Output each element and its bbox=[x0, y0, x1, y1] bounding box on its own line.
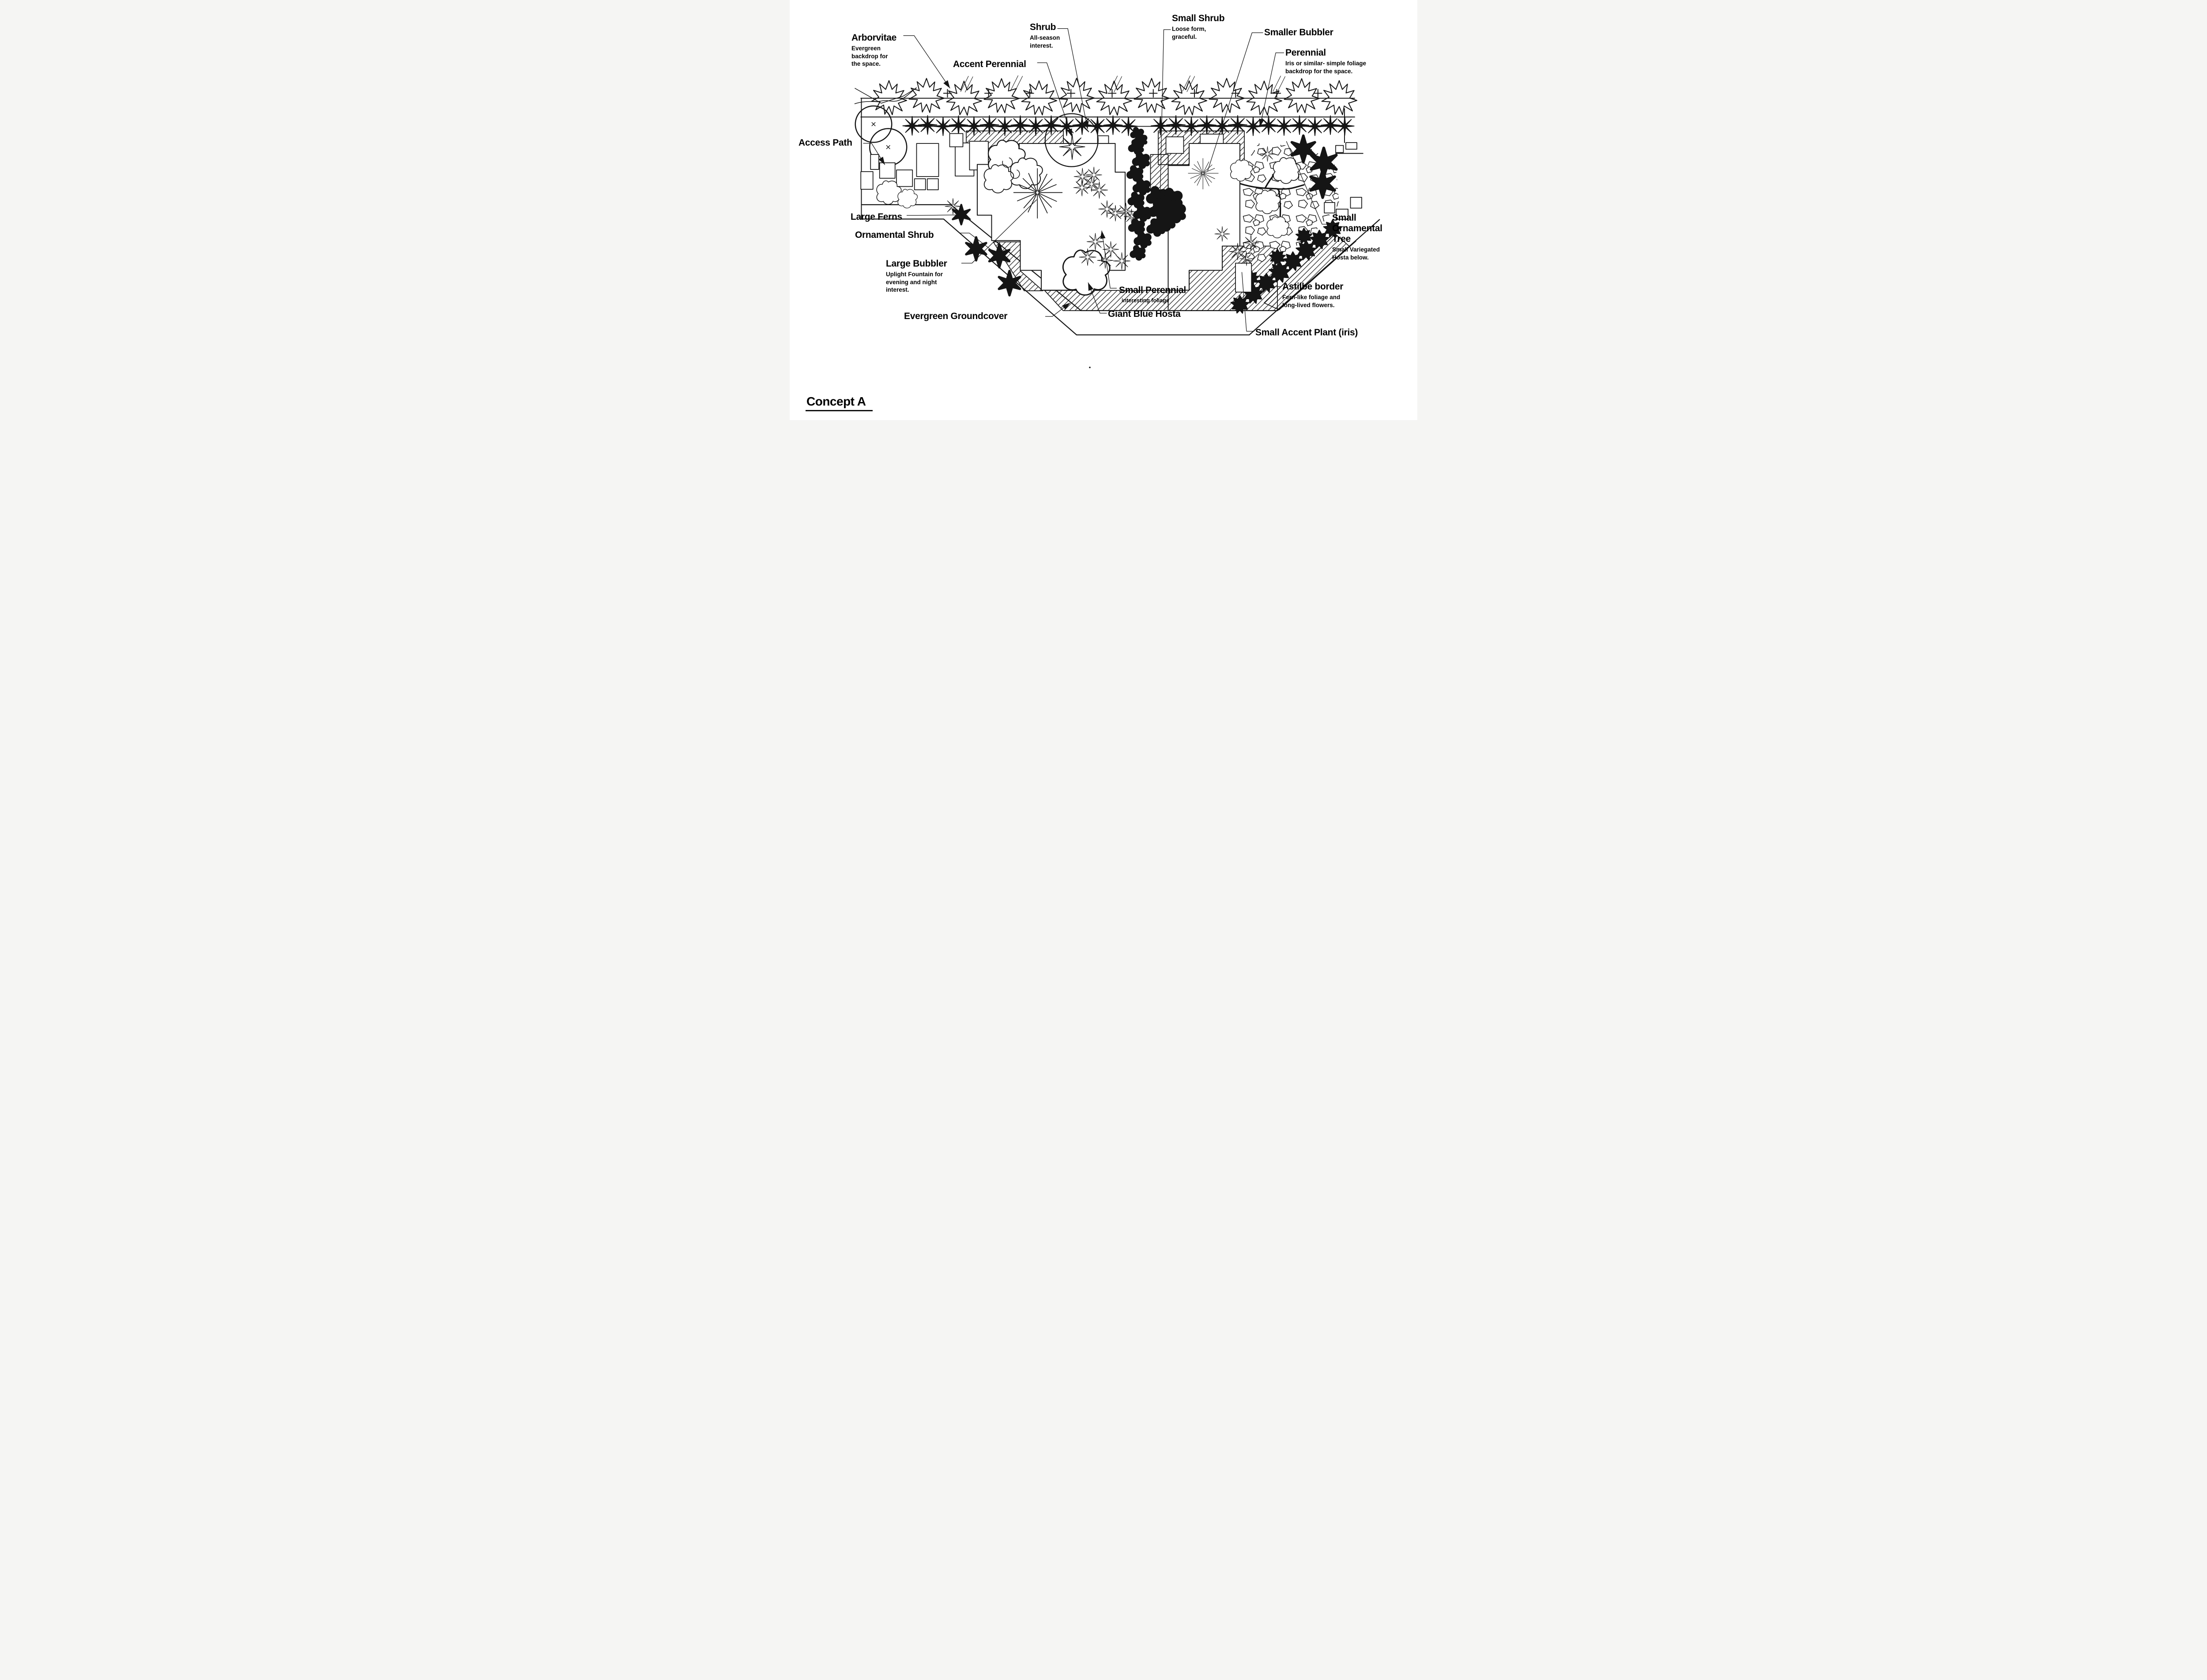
callout-small-perennial-desc: interesting foliage bbox=[1122, 297, 1186, 304]
callout-small-shrub-desc: Loose form, graceful. bbox=[1172, 25, 1224, 41]
callout-perennial-label: Perennial bbox=[1285, 48, 1366, 58]
callout-evergreen-groundcover: Evergreen Groundcover bbox=[904, 311, 1007, 322]
callout-astilbe-border-desc: Fern-like foliage and long-lived flowers… bbox=[1282, 293, 1343, 309]
callout-access-path: Access Path bbox=[798, 138, 852, 148]
callout-small-ornamental-tree: Small Ornamental Tree Small Variegated H… bbox=[1332, 213, 1382, 262]
callout-ornamental-shrub-label: Ornamental Shrub bbox=[855, 230, 934, 241]
callout-arborvitae-desc: Evergreen backdrop for the space. bbox=[851, 45, 896, 68]
callout-large-ferns-label: Large Ferns bbox=[851, 212, 902, 222]
callout-arborvitae-label: Arborvitae bbox=[851, 33, 896, 43]
landscape-plan-sheet: Arborvitae Evergreen backdrop for the sp… bbox=[790, 0, 1417, 420]
plan-title: Concept A bbox=[806, 395, 873, 411]
callout-small-shrub-label: Small Shrub bbox=[1172, 13, 1224, 24]
callout-large-ferns: Large Ferns bbox=[851, 212, 902, 222]
callout-evergreen-groundcover-label: Evergreen Groundcover bbox=[904, 311, 1007, 322]
callout-giant-blue-hosta: Giant Blue Hosta bbox=[1108, 309, 1180, 319]
callout-giant-blue-hosta-label: Giant Blue Hosta bbox=[1108, 309, 1180, 319]
callout-perennial-desc: Iris or similar- simple foliage backdrop… bbox=[1285, 60, 1366, 75]
stray-ink-speck bbox=[1089, 367, 1091, 368]
property-line-squiggle bbox=[855, 88, 917, 104]
callout-astilbe-border-label: Astilbe border bbox=[1282, 282, 1343, 292]
callout-shrub: Shrub All-season interest. bbox=[1030, 22, 1060, 49]
leader-large-ferns bbox=[907, 215, 956, 215]
callout-small-perennial-label: Small Perennial bbox=[1119, 285, 1186, 296]
callout-small-accent-plant-label: Small Accent Plant (iris) bbox=[1255, 327, 1358, 338]
callout-small-ornamental-tree-label: Small Ornamental Tree bbox=[1332, 213, 1382, 244]
callout-large-bubbler-label: Large Bubbler bbox=[886, 259, 947, 269]
callout-arborvitae: Arborvitae Evergreen backdrop for the sp… bbox=[851, 33, 896, 68]
callout-accent-perennial: Accent Perennial bbox=[953, 59, 1026, 70]
callout-access-path-label: Access Path bbox=[798, 138, 852, 148]
callout-small-perennial: Small Perennial interesting foliage bbox=[1119, 285, 1186, 304]
corner-paver bbox=[1235, 263, 1251, 292]
canopy-trees bbox=[855, 106, 907, 165]
callout-small-accent-plant: Small Accent Plant (iris) bbox=[1255, 327, 1358, 338]
plant-column bbox=[1126, 127, 1152, 261]
callout-small-ornamental-tree-desc: Small Variegated Hosta below. bbox=[1332, 246, 1382, 261]
callout-shrub-label: Shrub bbox=[1030, 22, 1060, 33]
callout-accent-perennial-label: Accent Perennial bbox=[953, 59, 1026, 70]
callout-large-bubbler-desc: Uplight Fountain for evening and night i… bbox=[886, 271, 947, 294]
callout-smaller-bubbler: Smaller Bubbler bbox=[1264, 27, 1333, 38]
hedge-row bbox=[872, 75, 1357, 115]
callout-small-shrub: Small Shrub Loose form, graceful. bbox=[1172, 13, 1224, 41]
callout-ornamental-shrub: Ornamental Shrub bbox=[855, 230, 934, 241]
plant-center-plus-marks bbox=[944, 90, 1322, 98]
callout-astilbe-border: Astilbe border Fern-like foliage and lon… bbox=[1282, 282, 1343, 309]
callout-large-bubbler: Large Bubbler Uplight Fountain for eveni… bbox=[886, 259, 947, 294]
callout-smaller-bubbler-label: Smaller Bubbler bbox=[1264, 27, 1333, 38]
callout-perennial: Perennial Iris or similar- simple foliag… bbox=[1285, 48, 1366, 75]
callout-shrub-desc: All-season interest. bbox=[1030, 34, 1060, 49]
